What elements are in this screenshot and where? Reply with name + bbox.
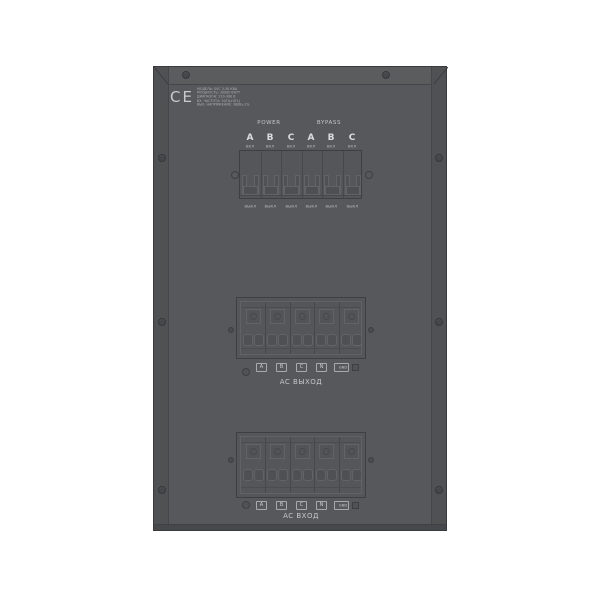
screw-icon [435,318,443,326]
breaker-toggle [243,186,258,195]
terminal-label-b: B [276,501,287,510]
mounting-hole-icon [368,457,374,463]
phase-label: C [281,133,301,143]
ups-rear-panel: CE МОДЕЛЬ: SVC 3-30 КВА МОЩНОСТЬ: 30000 … [153,66,447,531]
mounting-hole-icon [228,327,234,333]
breaker-on-label: ВКЛ [306,144,317,148]
breaker-toggle [264,186,279,195]
terminal [241,302,266,354]
screw-icon [158,154,166,162]
breaker-switch [343,151,364,198]
equipment-rear-panel-view: CE МОДЕЛЬ: SVC 3-30 КВА МОЩНОСТЬ: 30000 … [0,0,600,600]
spec-line: ВЫХ. НАПРЯЖЕНИЕ: 380В±1% [197,103,249,107]
screw-icon [182,71,190,79]
terminal [314,302,339,354]
ac-input-caption: AC ВХОД [261,512,341,520]
panel-bottom-edge [154,524,446,530]
terminal-label-c: C [296,363,307,372]
breaker-toggle [305,186,320,195]
breaker-block [239,150,362,199]
breaker-switch [281,151,303,198]
breaker-toggle [325,186,340,195]
mounting-hole-icon [242,501,250,509]
phase-label: A [240,133,260,143]
screw-icon [435,486,443,494]
terminal-label-b: B [276,363,287,372]
terminal [314,437,339,493]
breaker-on-label: ВКЛ [326,144,337,148]
panel-left-bevel [154,67,169,530]
mounting-hole-icon [352,364,359,371]
screw-icon [435,154,443,162]
terminal [241,437,266,493]
breaker-on-label: ВКЛ [286,144,297,148]
terminal-label-c: C [296,501,307,510]
mounting-hole-icon [242,368,250,376]
breaker-off-label: ВЫКЛ [286,204,297,208]
terminal-screw-icon [323,313,330,320]
terminal [265,437,290,493]
terminal-screw-icon [299,313,306,320]
terminal-screw-icon [274,313,281,320]
mounting-hole-icon [231,171,239,179]
phase-label: C [342,133,362,143]
panel-top-bevel [154,67,446,85]
breaker-off-label: ВЫКЛ [326,204,337,208]
mounting-hole-icon [228,457,234,463]
terminal [290,302,315,354]
terminal [339,302,363,354]
terminal [265,302,290,354]
spec-label: МОДЕЛЬ: SVC 3-30 КВА МОЩНОСТЬ: 30000 ВАТ… [197,87,249,107]
phase-label: B [321,133,341,143]
screw-icon [158,486,166,494]
ac-input-terminal-block [236,432,366,498]
breaker-switch [240,151,262,198]
ac-output-terminal-block [236,297,366,359]
power-group-label: POWER [239,120,299,126]
breaker-off-label: ВЫКЛ [245,204,256,208]
screw-icon [158,318,166,326]
mounting-hole-icon [368,327,374,333]
terminal-screw-icon [250,448,257,455]
terminal-screw-icon [274,448,281,455]
terminal-label-n: N [316,501,327,510]
ac-output-caption: AC ВЫХОД [261,378,341,386]
ce-mark: CE [170,88,194,106]
screw-icon [382,71,390,79]
breaker-switch [261,151,283,198]
breaker-switch [322,151,344,198]
breaker-switch [302,151,324,198]
terminal-screw-icon [348,313,355,320]
breaker-off-label: ВЫКЛ [306,204,317,208]
terminal-label-gnd: GND [334,501,349,510]
terminal-screw-icon [299,448,306,455]
phase-label: B [260,133,280,143]
phase-label: A [301,133,321,143]
terminal-label-gnd: GND [334,363,349,372]
terminal-label-n: N [316,363,327,372]
terminal-label-a: A [256,363,267,372]
breaker-on-label: ВКЛ [245,144,256,148]
bypass-group-label: BYPASS [299,120,359,126]
terminal [339,437,363,493]
panel-right-bevel [431,67,446,530]
terminal-screw-icon [348,448,355,455]
breaker-off-label: ВЫКЛ [347,204,358,208]
breaker-toggle [284,186,299,195]
mounting-hole-icon [365,171,373,179]
terminal-label-a: A [256,501,267,510]
terminal-screw-icon [250,313,257,320]
terminal-screw-icon [323,448,330,455]
breaker-on-label: ВКЛ [265,144,276,148]
mounting-hole-icon [352,502,359,509]
terminal [290,437,315,493]
breaker-off-label: ВЫКЛ [265,204,276,208]
breaker-on-label: ВКЛ [347,144,358,148]
breaker-toggle [346,186,361,195]
